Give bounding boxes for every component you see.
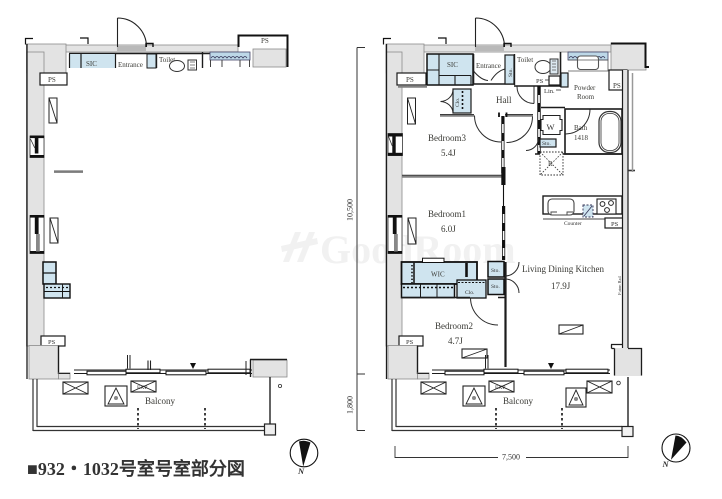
svg-text:R: R (548, 160, 553, 168)
svg-text:Entrance: Entrance (118, 61, 143, 69)
svg-text:Entrance: Entrance (476, 62, 501, 70)
svg-text:SIC: SIC (447, 61, 458, 69)
svg-text:Sto.: Sto. (491, 268, 500, 274)
svg-text:Living Dining Kitchen: Living Dining Kitchen (522, 264, 604, 274)
svg-text:PS: PS (611, 221, 619, 228)
svg-text:5.4J: 5.4J (441, 148, 456, 158)
svg-text:EXP: EXP (137, 385, 147, 391)
svg-text:Balcony: Balcony (145, 396, 175, 406)
svg-text:Balcony: Balcony (503, 396, 533, 406)
svg-text:Clo.: Clo. (455, 97, 461, 107)
svg-text:10,500: 10,500 (346, 199, 355, 221)
svg-text:Hall: Hall (496, 95, 512, 105)
svg-text:PS: PS (406, 339, 414, 346)
svg-text:W: W (547, 122, 555, 132)
svg-text:1418: 1418 (574, 134, 589, 142)
svg-text:Clo.: Clo. (465, 290, 475, 296)
svg-text:PS: PS (613, 82, 621, 90)
svg-text:Toilet: Toilet (517, 56, 533, 64)
svg-text:Bedroom1: Bedroom1 (428, 209, 466, 219)
svg-text:Bedroom3: Bedroom3 (428, 133, 466, 143)
svg-text:PS: PS (536, 78, 544, 85)
svg-text:■932・1032号室号室部分図: ■932・1032号室号室部分図 (27, 458, 245, 479)
svg-text:EXP: EXP (495, 385, 505, 391)
svg-text:WIC: WIC (431, 271, 445, 279)
svg-text:7,500: 7,500 (502, 453, 520, 462)
svg-text:N: N (297, 466, 305, 476)
svg-text:SIC: SIC (86, 60, 97, 68)
svg-text:PS: PS (48, 339, 56, 346)
svg-text:17.9J: 17.9J (551, 281, 571, 291)
svg-text:Sto.: Sto. (542, 141, 551, 147)
svg-text:Sto.: Sto. (508, 68, 514, 77)
svg-text:1,800: 1,800 (346, 396, 355, 414)
svg-text:N: N (662, 459, 670, 469)
svg-text:4.7J: 4.7J (448, 336, 463, 346)
svg-text:Bedroom2: Bedroom2 (435, 321, 473, 331)
svg-text:Lin.: Lin. (544, 88, 555, 95)
svg-text:Futon Rail: Futon Rail (617, 275, 622, 295)
svg-text:Counter: Counter (564, 221, 582, 227)
svg-text:PS: PS (48, 76, 56, 84)
svg-text:PS: PS (406, 76, 414, 84)
svg-text:6.0J: 6.0J (441, 224, 456, 234)
svg-text:PS: PS (261, 37, 269, 45)
svg-text:Sto.: Sto. (491, 284, 500, 290)
svg-text:Powder: Powder (574, 84, 596, 92)
svg-text:Room: Room (577, 93, 595, 101)
